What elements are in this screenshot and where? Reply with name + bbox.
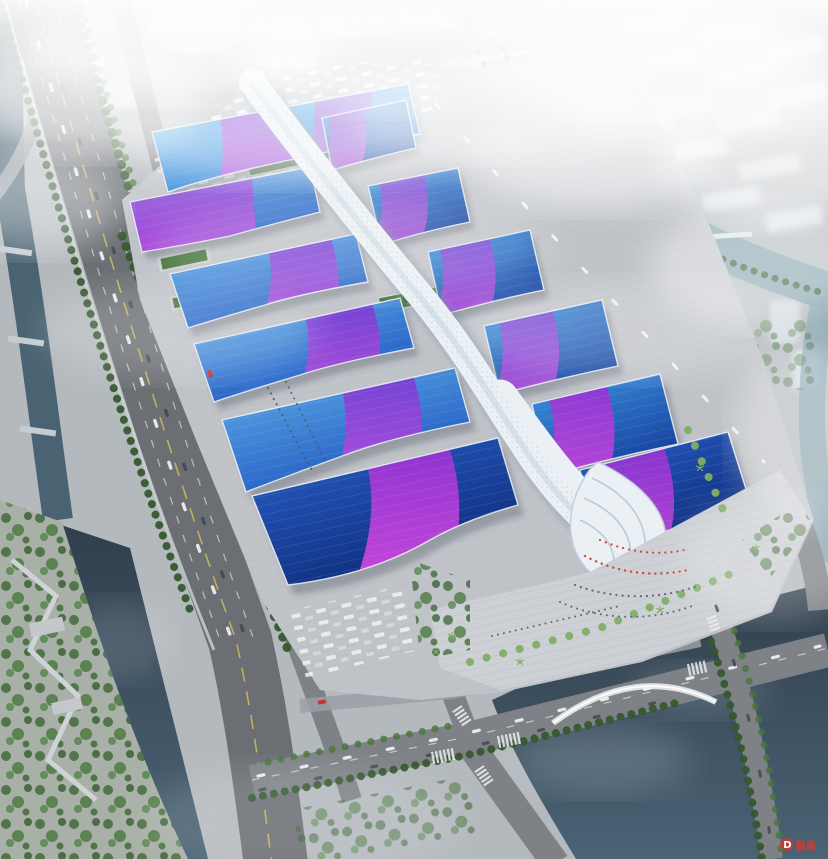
rendering-canvas: D [0,0,828,859]
watermark-glyph [796,841,805,851]
watermark-glyph [807,841,815,851]
aerial-rendering: D [0,0,828,859]
watermark-letter: D [783,840,791,851]
